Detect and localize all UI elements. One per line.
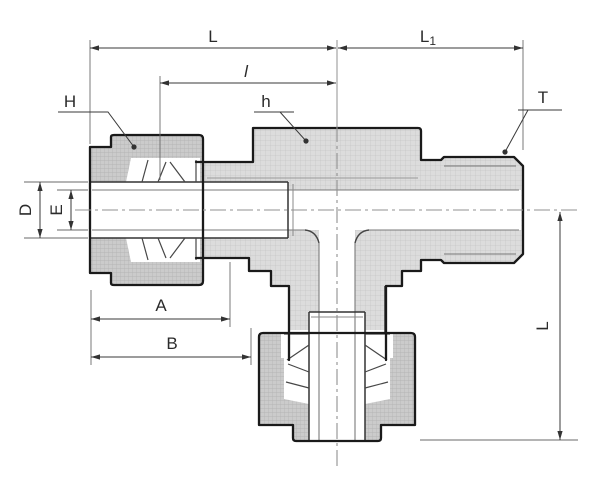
dim-label-H: H: [64, 92, 76, 111]
dim-label-E: E: [47, 204, 66, 215]
dim-label-D: D: [16, 204, 35, 216]
dim-label-B: B: [166, 334, 177, 353]
dim-label-L-vertical: L: [533, 321, 552, 330]
dim-label-T: T: [538, 88, 548, 107]
dim-label-h: h: [261, 92, 270, 111]
drawing-page: L L1 l H h T: [0, 0, 603, 485]
fitting-drawing-svg: L L1 l H h T: [0, 0, 603, 485]
dim-label-L-top: L: [208, 27, 217, 46]
dim-label-A: A: [155, 296, 167, 315]
